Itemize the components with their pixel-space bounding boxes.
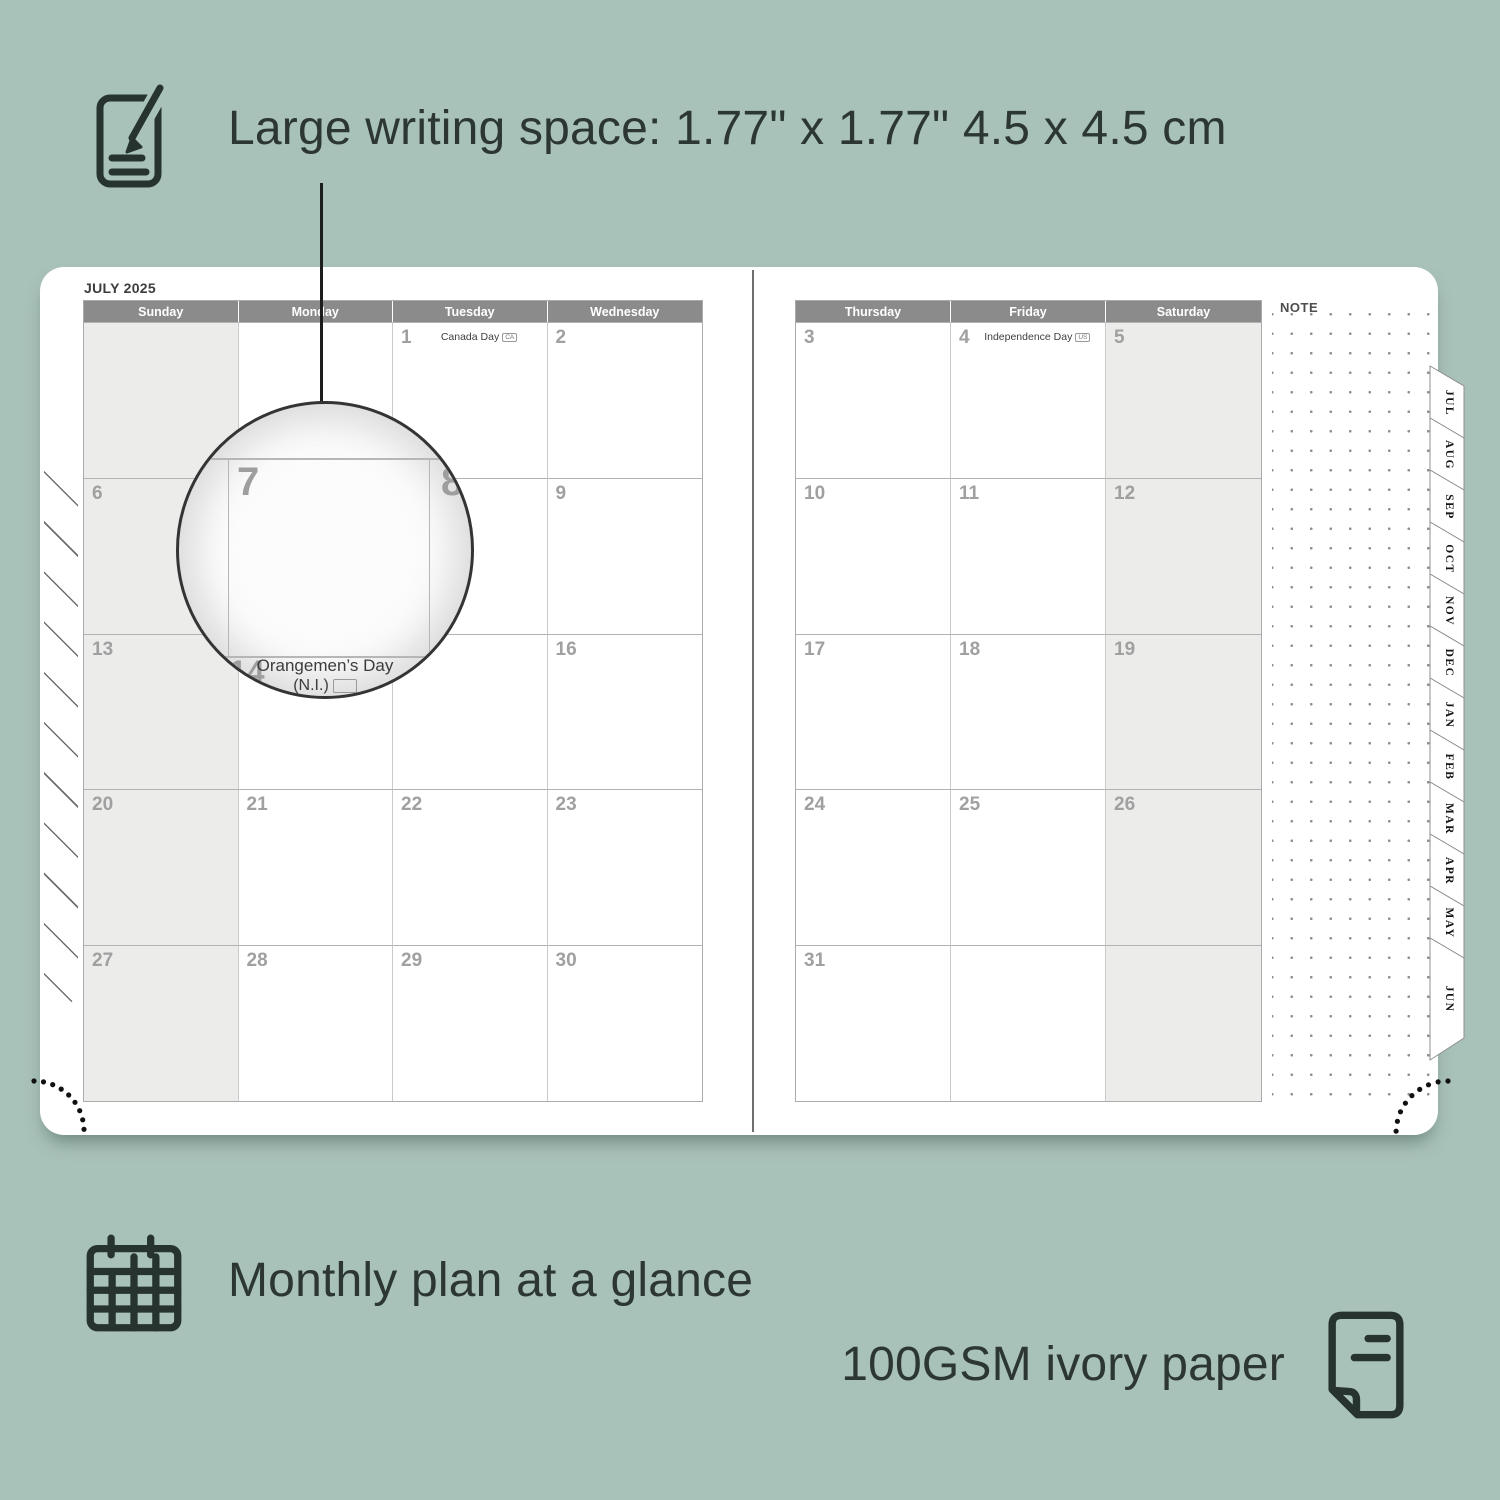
day-number: 3 [796,323,815,349]
day-cell: 11 [951,478,1106,634]
day-number: 30 [548,946,577,972]
corner-dots-right [1380,1067,1480,1167]
magnified-event-badge [333,679,357,693]
day-number: 2 [548,323,567,349]
day-cell: 25 [951,789,1106,945]
day-number: 21 [239,790,268,816]
day-cell: 22 [393,789,548,945]
day-cell: 19 [1106,634,1261,790]
day-cell: 4Independence DayUS [951,322,1106,478]
page-spine [752,270,754,1132]
day-number: 24 [796,790,825,816]
day-number: 6 [84,479,103,505]
corner-dots-left [20,1067,120,1167]
day-header: Thursday [796,301,951,322]
magnified-event-line2-text: (N.I.) [293,677,329,694]
day-number: 13 [84,635,113,661]
day-cell: 2 [548,322,703,478]
day-number: 23 [548,790,577,816]
day-number: 18 [951,635,980,661]
feature-paper-text: 100GSM ivory paper [700,1337,1285,1392]
day-cell: 20 [84,789,239,945]
left-page-edges [44,443,78,1023]
note-area: NOTE [1272,300,1434,1102]
holiday-country-badge: US [1075,333,1090,342]
magnifier-connector-line [320,183,323,403]
month-tab-label: SEP [1443,494,1455,520]
day-number [1106,946,1114,950]
note-label: NOTE [1280,300,1318,315]
magnified-day-number: 7 [237,460,259,505]
day-number: 28 [239,946,268,972]
day-cell: 29 [393,945,548,1101]
day-cell: 17 [796,634,951,790]
holiday-label: Canada DayCA [412,323,547,343]
day-number: 22 [393,790,422,816]
day-number: 19 [1106,635,1135,661]
day-number [951,946,959,950]
day-number: 11 [951,479,979,505]
feature-monthly-plan-text: Monthly plan at a glance [228,1253,753,1308]
day-cell: 26 [1106,789,1261,945]
day-cell: 10 [796,478,951,634]
feature-writing-space-text: Large writing space: 1.77" x 1.77" 4.5 x… [228,101,1227,156]
day-cell: 12 [1106,478,1261,634]
day-cell: 21 [239,789,394,945]
day-number [239,323,247,327]
day-cell: 9 [548,478,703,634]
day-header: Monday [239,301,394,322]
right-calendar-grid: ThursdayFridaySaturday34Independence Day… [795,300,1262,1102]
day-header: Friday [951,301,1106,322]
month-tab-label: JUL [1443,390,1455,416]
day-header: Tuesday [393,301,548,322]
day-cell: 18 [951,634,1106,790]
day-header: Saturday [1106,301,1261,322]
day-number: 17 [796,635,825,661]
month-tab-label: JUN [1443,986,1455,1013]
day-header: Sunday [84,301,239,322]
magnifier-circle: 7 8 14 Orangemen’s Day (N.I.) [176,401,474,699]
day-cell: 3 [796,322,951,478]
day-number: 10 [796,479,825,505]
planner-spread: JULY 2025 SundayMondayTuesdayWednesday1C… [40,267,1438,1135]
month-tab-label: OCT [1443,544,1455,573]
notepad-pencil-icon [92,80,172,192]
holiday-label: Independence DayUS [970,323,1105,343]
day-number: 20 [84,790,113,816]
day-cell: 5 [1106,322,1261,478]
magnified-event-line2: (N.I.) [179,677,471,695]
month-tabs: JULAUGSEPOCTNOVDECJANFEBMARAPRMAYJUN [1430,366,1470,1066]
holiday-country-badge: CA [502,333,517,342]
day-number: 12 [1106,479,1135,505]
day-cell: 23 [548,789,703,945]
product-image: Large writing space: 1.77" x 1.77" 4.5 x… [0,0,1500,1500]
paper-sheet-icon [1318,1310,1414,1420]
day-number: 9 [548,479,567,505]
month-tab-label: APR [1443,857,1455,885]
month-tab-label: MAR [1443,803,1455,835]
magnified-next-day-number: 8 [441,460,463,505]
month-tab-label: DEC [1443,649,1455,678]
day-number: 25 [951,790,980,816]
day-cell [951,945,1106,1101]
day-number: 27 [84,946,113,972]
day-number: 26 [1106,790,1135,816]
day-cell: 24 [796,789,951,945]
month-tab-label: JAN [1443,702,1455,729]
month-tab-label: NOV [1443,596,1455,626]
day-number [84,323,92,327]
day-header: Wednesday [548,301,703,322]
month-title: JULY 2025 [84,280,156,296]
month-tab-label: MAY [1443,908,1455,939]
day-cell [1106,945,1261,1101]
day-number: 1 [393,323,412,349]
month-tab-label: AUG [1443,440,1455,470]
day-number: 29 [393,946,422,972]
day-cell: 16 [548,634,703,790]
day-number: 4 [951,323,970,349]
month-tab-label: FEB [1443,754,1455,781]
calendar-grid-icon [84,1234,184,1334]
day-number: 31 [796,946,825,972]
day-cell: 31 [796,945,951,1101]
day-cell: 28 [239,945,394,1101]
magnified-event-line1: Orangemen’s Day [179,656,471,676]
day-cell: 30 [548,945,703,1101]
day-number: 5 [1106,323,1125,349]
day-number: 16 [548,635,577,661]
